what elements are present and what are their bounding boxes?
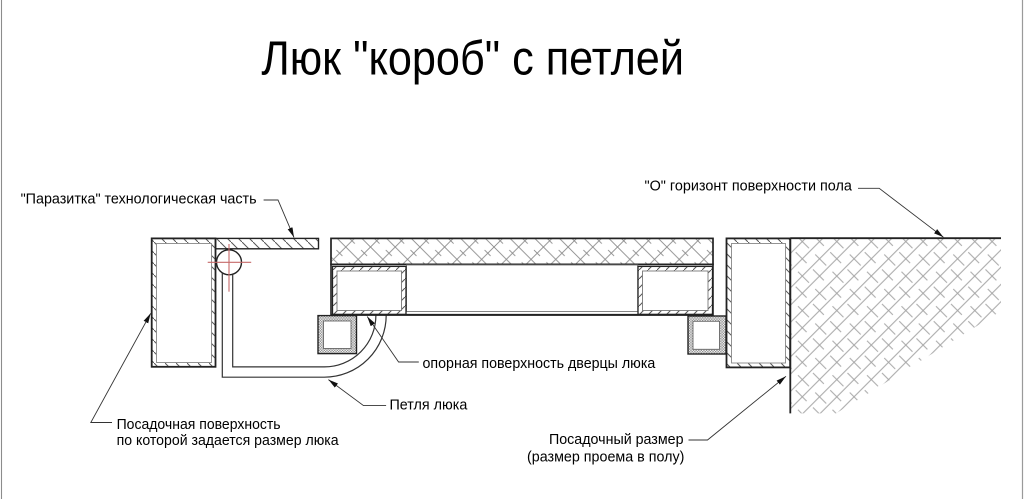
svg-text:"О" горизонт поверхности пола: "О" горизонт поверхности пола xyxy=(645,179,852,195)
svg-text:Петля люка: Петля люка xyxy=(390,398,468,414)
svg-text:по которой задается размер люк: по которой задается размер люка xyxy=(117,433,339,449)
svg-text:Посадочная поверхность: Посадочная поверхность xyxy=(117,417,281,433)
svg-text:Люк "короб" с петлей: Люк "короб" с петлей xyxy=(261,33,684,86)
svg-text:опорная поверхность дверцы люк: опорная поверхность дверцы люка xyxy=(423,356,656,372)
svg-text:"Паразитка" технологическая ча: "Паразитка" технологическая часть xyxy=(21,191,257,207)
svg-text:Посадочный размер: Посадочный размер xyxy=(549,432,684,448)
svg-text:(размер проема в полу): (размер проема в полу) xyxy=(527,449,684,465)
